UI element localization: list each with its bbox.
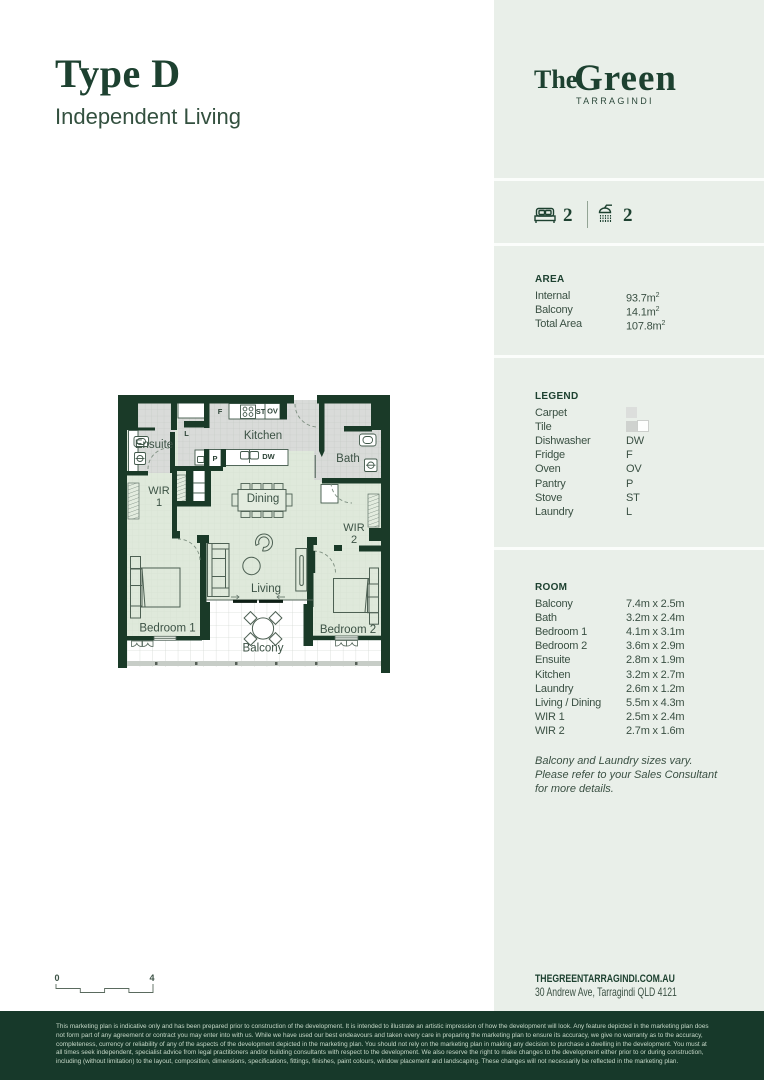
svg-text:0: 0 [54,973,59,983]
svg-text:F: F [218,407,223,416]
svg-text:2: 2 [351,534,357,546]
svg-text:Ensuite: Ensuite [135,439,173,451]
svg-text:Bedroom 2: Bedroom 2 [320,624,376,636]
svg-text:Kitchen: Kitchen [244,430,282,442]
svg-text:L: L [184,429,189,438]
svg-text:4: 4 [149,973,154,983]
svg-text:WIR: WIR [148,485,169,497]
svg-text:ST: ST [256,407,266,416]
svg-text:Bedroom 1: Bedroom 1 [139,623,195,635]
svg-text:Balcony: Balcony [243,643,284,655]
svg-text:OV: OV [267,407,278,416]
svg-text:Living: Living [251,583,281,595]
svg-text:WIR: WIR [343,522,364,534]
svg-text:1: 1 [156,497,162,509]
svg-text:Dining: Dining [247,493,280,505]
svg-text:DW: DW [262,452,275,461]
svg-text:P: P [212,454,217,463]
svg-text:Bath: Bath [336,453,360,465]
